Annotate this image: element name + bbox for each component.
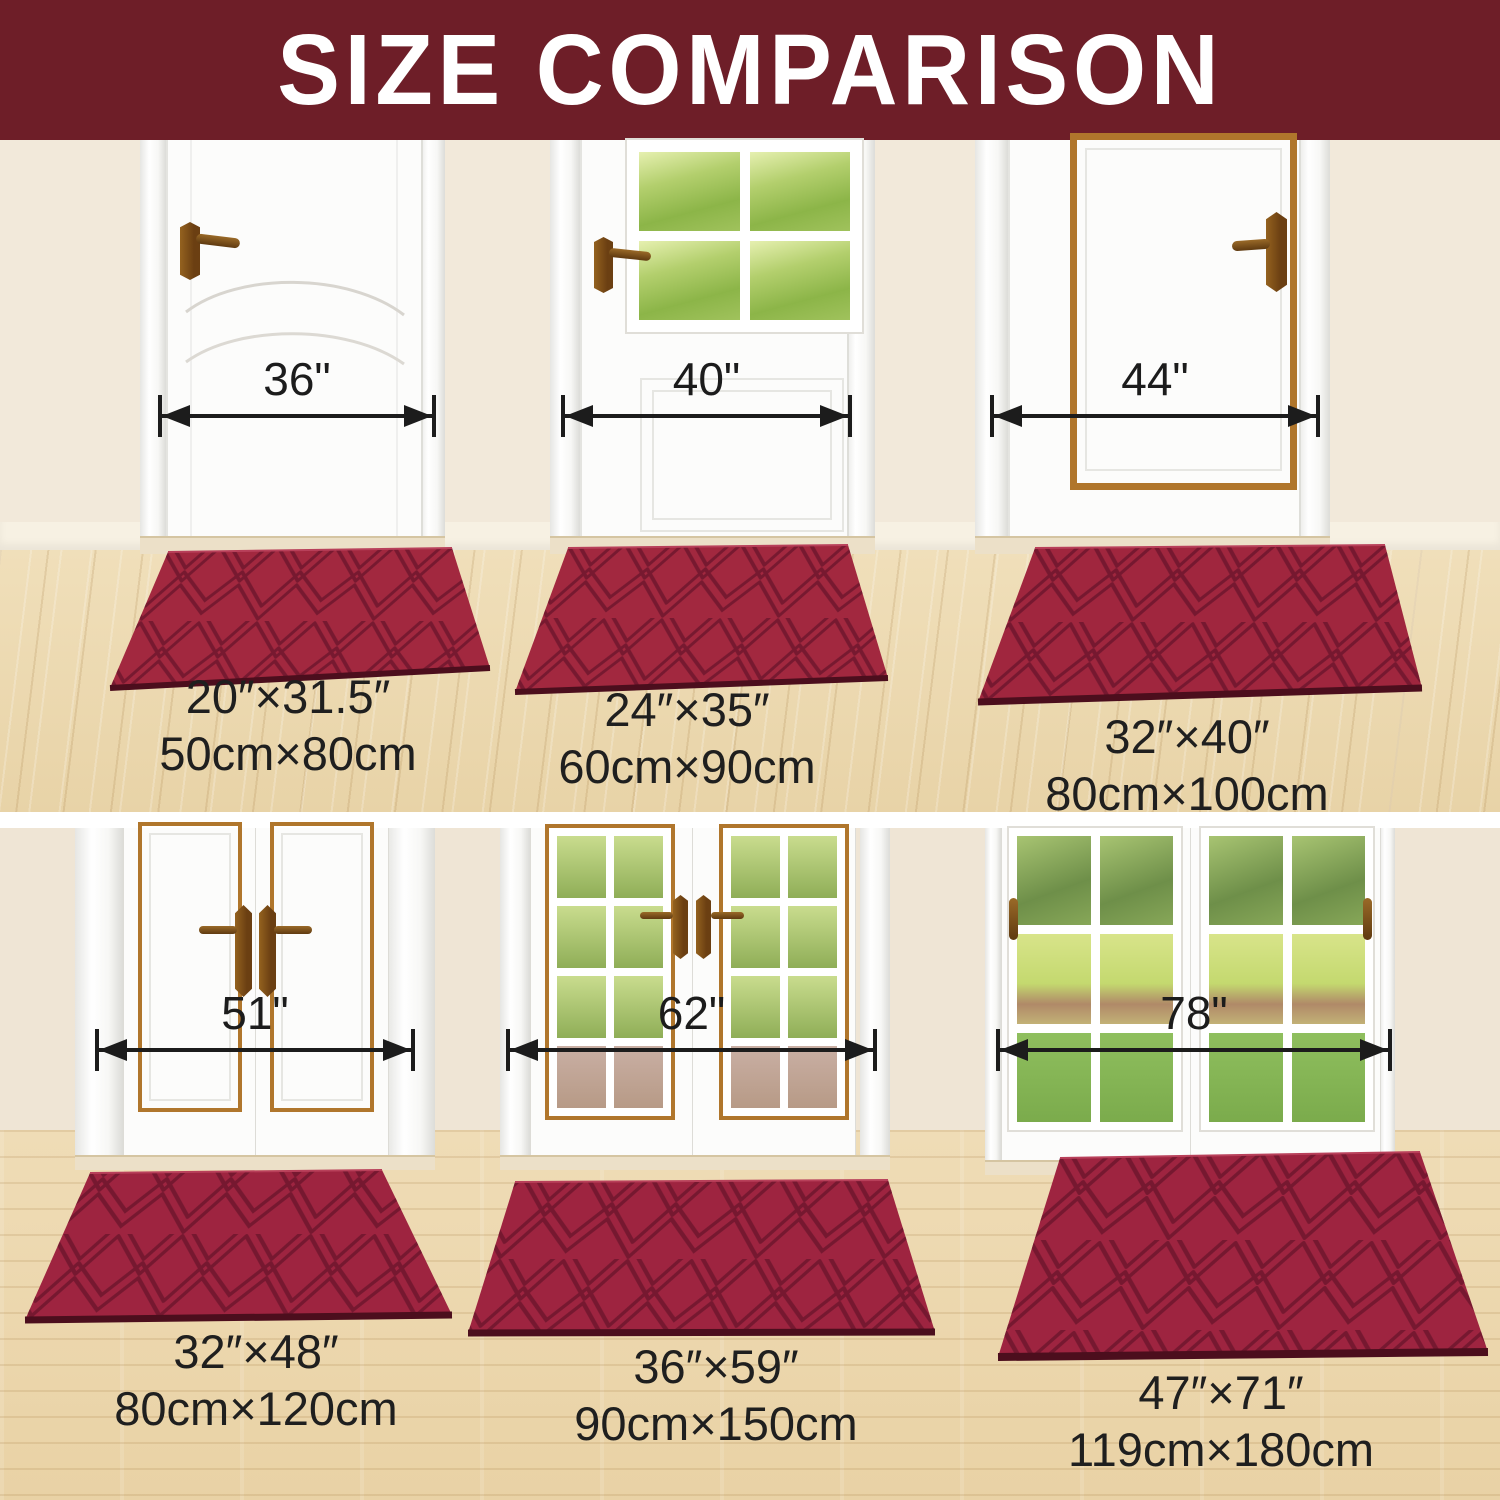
mat-size-inches: 36″×59″: [486, 1342, 946, 1392]
measure-36: 36": [160, 356, 434, 418]
window-pane: [750, 152, 851, 231]
measure-62-line: [508, 1048, 875, 1052]
window-pane: [1292, 836, 1366, 925]
window-pane: [731, 1046, 780, 1108]
door-62-handle-left: [673, 895, 688, 959]
panel-inner-line: [281, 833, 363, 1101]
mat-size-inches: 47″×71″: [991, 1368, 1451, 1418]
window-pane: [788, 906, 837, 968]
window-pane: [557, 836, 606, 898]
window-pane: [1100, 836, 1174, 925]
measure-36-line: [160, 414, 434, 418]
window-pane: [614, 1046, 663, 1108]
door-51-right-panel: [270, 822, 374, 1112]
door-44: [975, 140, 1330, 552]
mat-size-label: 36″×59″ 90cm×150cm: [486, 1342, 946, 1449]
tick-right: [1316, 395, 1320, 437]
door-36-panel-curves: [168, 140, 421, 544]
window-pane: [788, 1046, 837, 1108]
window-pane: [1017, 836, 1091, 925]
door-44-left-jamb: [975, 140, 1008, 544]
tick-right: [848, 395, 852, 437]
window-pane: [750, 241, 851, 320]
measure-78-line: [998, 1048, 1390, 1052]
window-pane: [731, 836, 780, 898]
door-62-left-window: [549, 828, 671, 1116]
tick-right: [1388, 1029, 1392, 1071]
door-62-spindle-right: [711, 912, 744, 919]
tick-right: [873, 1029, 877, 1071]
window-pane: [557, 1046, 606, 1108]
measure-62-label: 62": [508, 990, 875, 1036]
doormat-32x48: [15, 1150, 480, 1325]
arrowhead-right: [383, 1039, 411, 1061]
door-44-slab: [1008, 140, 1301, 544]
door-44-gold-trim: [1070, 133, 1297, 490]
measure-51-label: 51": [97, 990, 413, 1036]
page-title: SIZE COMPARISON: [277, 13, 1223, 128]
mat-size-label: 32″×40″ 80cm×100cm: [957, 712, 1417, 819]
measure-40-line: [563, 414, 850, 418]
tick-right: [411, 1029, 415, 1071]
door-78-right-window-grid: [1201, 828, 1373, 1130]
measure-40: 40": [563, 356, 850, 418]
mat-size-inches: 20″×31.5″: [58, 672, 518, 722]
doormat-36x59: [460, 1175, 940, 1340]
door-51-left-panel: [138, 822, 242, 1112]
door-62-right-window-trim: [719, 824, 849, 1120]
door-62-left-window-trim: [545, 824, 675, 1120]
doormat-24x35: [510, 542, 895, 697]
door-40-slab: [580, 140, 849, 544]
arrowhead-left: [1000, 1039, 1028, 1061]
measure-51: 51": [97, 990, 413, 1052]
measure-78-label: 78": [998, 990, 1390, 1036]
arrowhead-right: [404, 405, 432, 427]
door-44-handle-plate: [1266, 212, 1287, 292]
mat-size-cm: 80cm×120cm: [26, 1384, 486, 1434]
mat-size-inches: 32″×40″: [957, 712, 1417, 762]
measure-44-label: 44": [992, 356, 1318, 402]
arrowhead-left: [162, 405, 190, 427]
arrowhead-left: [565, 405, 593, 427]
mat-size-inches: 24″×35″: [457, 685, 917, 735]
mat-size-label: 47″×71″ 119cm×180cm: [991, 1368, 1451, 1475]
door-51-spindle-right: [274, 926, 312, 934]
door-62-threshold: [500, 1155, 890, 1170]
window-pane: [557, 906, 606, 968]
mat-size-cm: 119cm×180cm: [991, 1425, 1451, 1475]
door-36-slab: [166, 140, 423, 544]
window-pane: [639, 241, 740, 320]
mat-size-label: 32″×48″ 80cm×120cm: [26, 1327, 486, 1434]
title-banner: SIZE COMPARISON: [0, 0, 1500, 140]
door-40-left-jamb: [550, 140, 580, 544]
arrowhead-right: [1288, 405, 1316, 427]
size-comparison-infographic: SIZE COMPARISON: [0, 0, 1500, 1500]
doormat-32x40: [972, 542, 1427, 707]
door-40: [550, 140, 875, 552]
door-40-handle-plate: [594, 237, 613, 293]
arrowhead-left: [99, 1039, 127, 1061]
door-40-window: [627, 140, 862, 332]
door-44-right-jamb: [1297, 140, 1330, 544]
door-78-left-window-grid: [1009, 828, 1181, 1130]
arrowhead-left: [994, 405, 1022, 427]
arrowhead-left: [510, 1039, 538, 1061]
door-36-left-jamb: [140, 140, 166, 544]
window-pane: [788, 836, 837, 898]
mat-size-cm: 90cm×150cm: [486, 1399, 946, 1449]
door-36: [140, 140, 445, 552]
arrowhead-right: [1360, 1039, 1388, 1061]
tick-right: [432, 395, 436, 437]
measure-51-line: [97, 1048, 413, 1052]
measure-62: 62": [508, 990, 875, 1052]
arrowhead-right: [820, 405, 848, 427]
measure-40-label: 40": [563, 356, 850, 402]
door-78-left-window: [1009, 828, 1181, 1130]
window-pane: [614, 836, 663, 898]
panel-inner-line: [149, 833, 231, 1101]
door-51-handle-left: [235, 905, 252, 997]
door-36-handle-plate: [180, 222, 200, 280]
door-44-trim-inner: [1085, 148, 1282, 471]
mat-size-cm: 60cm×90cm: [457, 742, 917, 792]
door-62-right-window: [723, 828, 845, 1116]
measure-44: 44": [992, 356, 1318, 418]
measure-36-label: 36": [160, 356, 434, 402]
window-pane: [639, 152, 740, 231]
measure-44-line: [992, 414, 1318, 418]
door-78-right-window: [1201, 828, 1373, 1130]
door-62-spindle-left: [640, 912, 673, 919]
mat-size-cm: 50cm×80cm: [58, 729, 518, 779]
arrowhead-right: [845, 1039, 873, 1061]
door-78-handle-left: [1009, 898, 1018, 940]
mat-size-inches: 32″×48″: [26, 1327, 486, 1377]
door-40-window-grid: [627, 140, 862, 332]
doormat-47x71: [990, 1150, 1495, 1360]
window-pane: [1209, 836, 1283, 925]
door-51-spindle-left: [199, 926, 237, 934]
mat-size-label: 24″×35″ 60cm×90cm: [457, 685, 917, 792]
door-62-handle-right: [696, 895, 711, 959]
door-51-handle-right: [259, 905, 276, 997]
measure-78: 78": [998, 990, 1390, 1052]
door-78-handle-right: [1363, 898, 1372, 940]
mat-size-label: 20″×31.5″ 50cm×80cm: [58, 672, 518, 779]
